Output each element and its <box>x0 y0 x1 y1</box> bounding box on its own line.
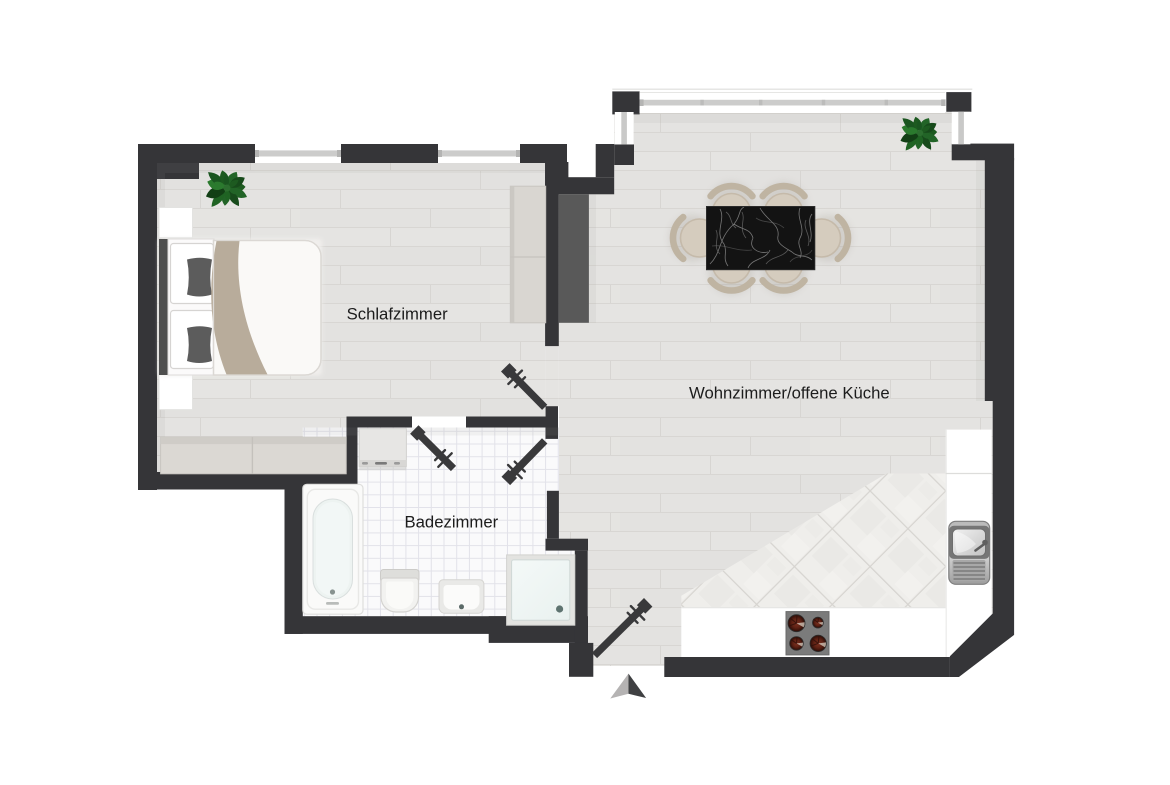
svg-text:Wohnzimmer/offene Küche: Wohnzimmer/offene Küche <box>689 384 890 403</box>
svg-text:Badezimmer: Badezimmer <box>405 513 499 532</box>
svg-text:Schlafzimmer: Schlafzimmer <box>347 305 449 324</box>
